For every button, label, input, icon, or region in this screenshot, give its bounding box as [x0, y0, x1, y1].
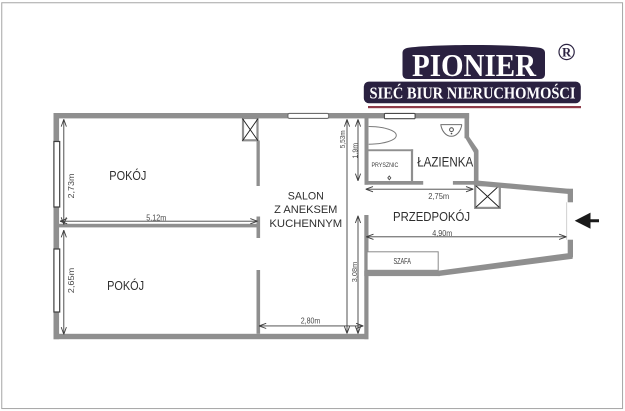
svg-text:2,65m: 2,65m [67, 267, 76, 293]
svg-text:PRZEDPOKÓJ: PRZEDPOKÓJ [393, 209, 470, 224]
svg-text:1,9m: 1,9m [352, 143, 359, 159]
svg-text:3,08m: 3,08m [350, 262, 359, 283]
svg-text:2,73m: 2,73m [67, 173, 76, 198]
svg-text:4,90m: 4,90m [432, 229, 452, 238]
svg-text:POKÓJ: POKÓJ [107, 278, 144, 293]
svg-text:ŁAZIENKA: ŁAZIENKA [417, 155, 473, 170]
svg-text:5,53m: 5,53m [340, 130, 347, 148]
svg-text:POKÓJ: POKÓJ [109, 168, 146, 183]
svg-text:5,12m: 5,12m [146, 213, 166, 222]
svg-text:R: R [562, 45, 572, 59]
svg-text:SIEĆ BIUR NIERUCHOMOŚCI: SIEĆ BIUR NIERUCHOMOŚCI [370, 83, 576, 102]
svg-text:2,80m: 2,80m [301, 316, 321, 325]
svg-text:KUCHENNYM: KUCHENNYM [269, 218, 342, 230]
svg-text:2,75m: 2,75m [428, 192, 449, 201]
svg-text:SZAFA: SZAFA [393, 257, 411, 266]
svg-text:PIONIER: PIONIER [412, 47, 537, 83]
svg-text:SALON: SALON [288, 190, 324, 202]
svg-text:Z ANEKSEM: Z ANEKSEM [274, 204, 337, 216]
svg-text:PRYSZNIC: PRYSZNIC [372, 162, 399, 169]
